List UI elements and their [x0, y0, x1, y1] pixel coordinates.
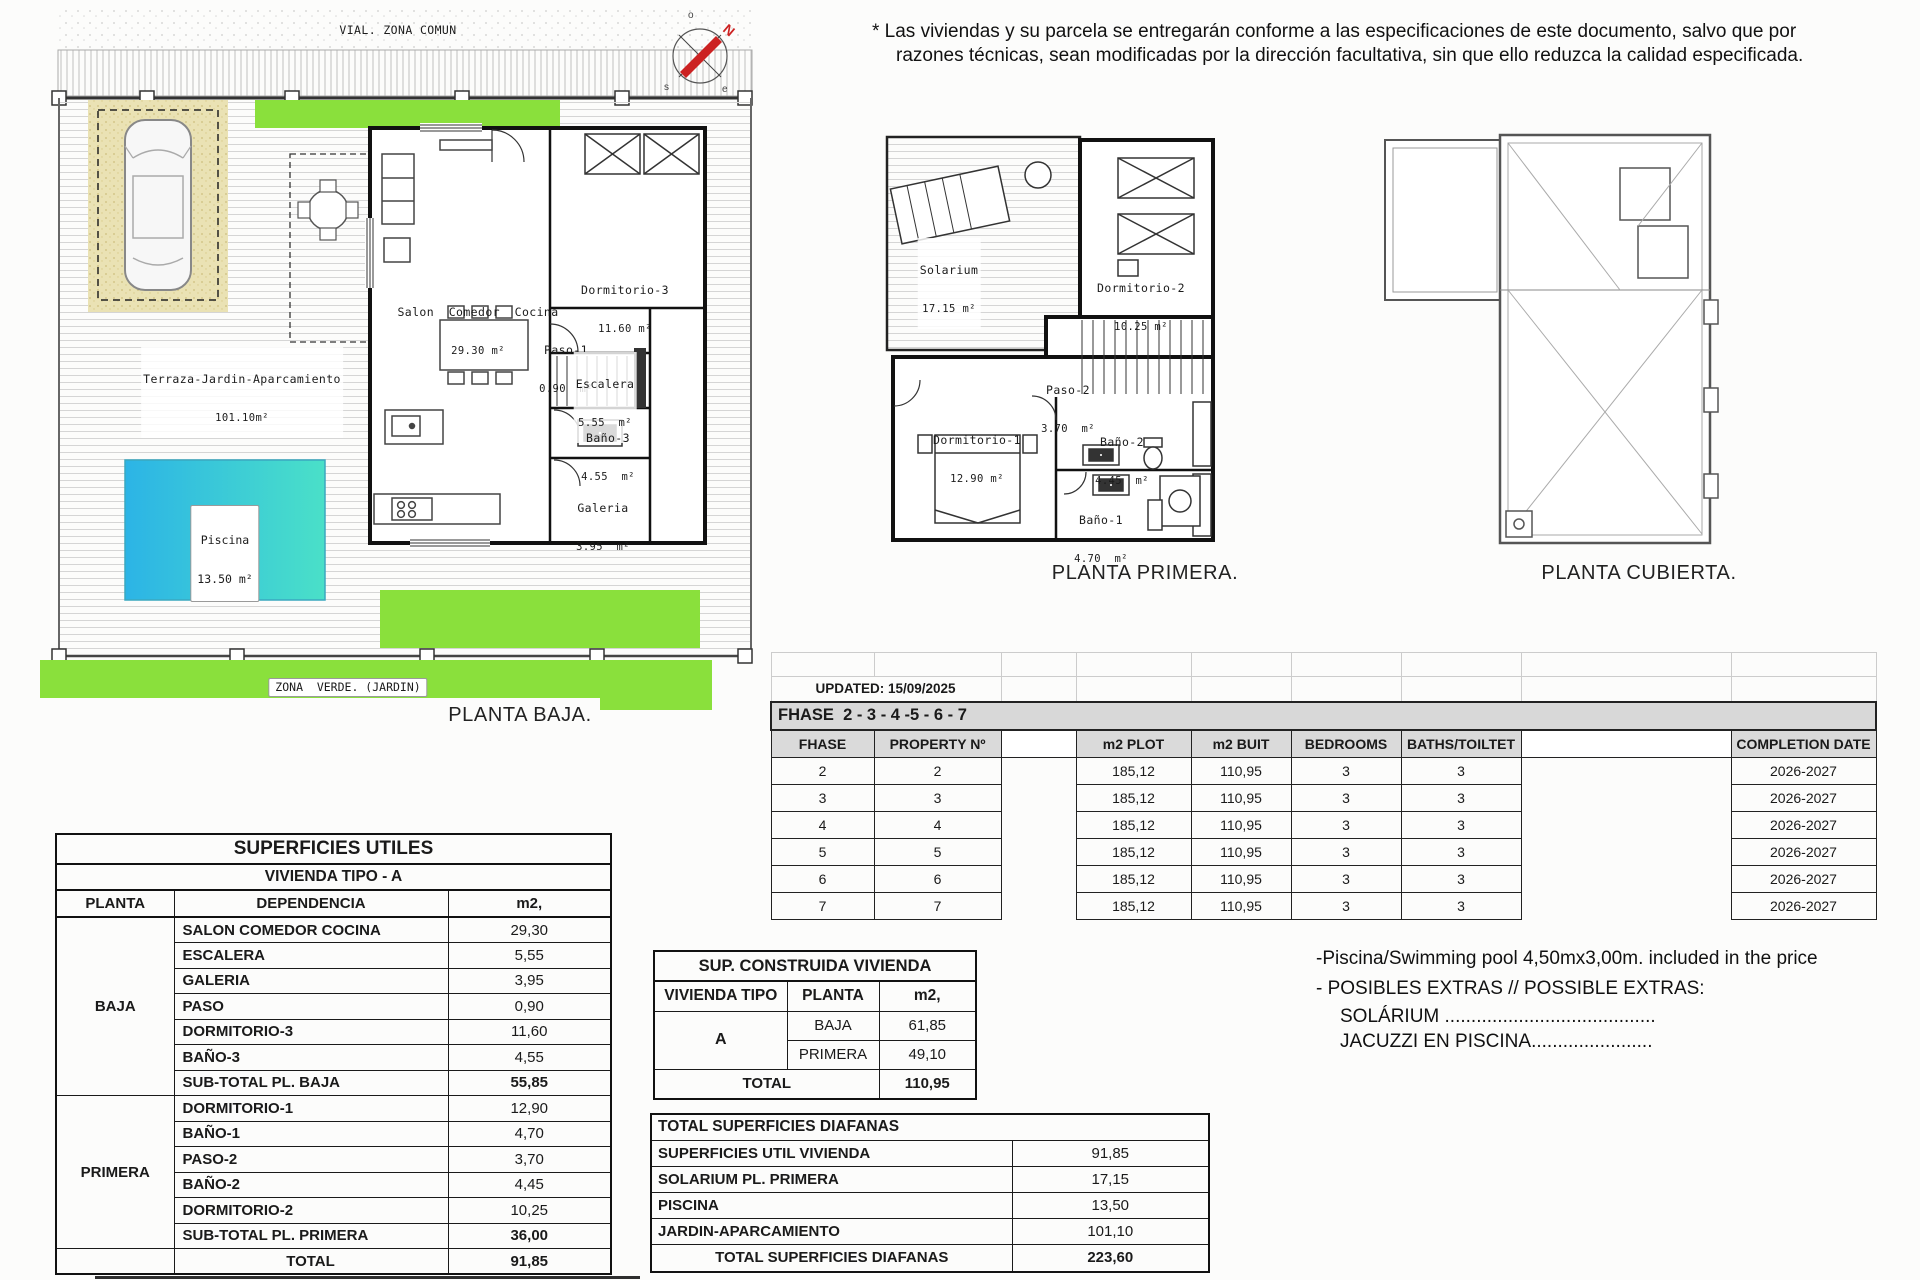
spacer-cell	[1521, 866, 1731, 893]
room-name: Galeria	[576, 502, 630, 515]
table-row: JARDIN-APARCAMIENTO 101,10	[651, 1218, 1209, 1244]
completion-cell: 2026-2027	[1731, 893, 1876, 920]
col-header-dependencia: DEPENDENCIA	[174, 890, 448, 917]
bedrooms-cell: 3	[1291, 866, 1401, 893]
room-name: Salon Comedor Cocina	[397, 306, 558, 319]
bedrooms-cell: 3	[1291, 893, 1401, 920]
fhase-cell: 5	[771, 839, 874, 866]
total-row: TOTAL 110,95	[654, 1069, 976, 1099]
dependencia-cell: BAÑO-3	[174, 1045, 448, 1071]
compass-o-label: o	[688, 10, 694, 21]
phase-row: 2 2 185,12 110,95 3 3 2026-2027	[771, 758, 1876, 785]
property-cell: 6	[874, 866, 1001, 893]
empty-cell	[1076, 677, 1191, 702]
room-name: Dormitorio-3	[581, 284, 669, 297]
phase-row: 3 3 185,12 110,95 3 3 2026-2027	[771, 785, 1876, 812]
total-row: TOTAL 91,85	[56, 1249, 611, 1275]
spacer-cell	[1001, 866, 1076, 893]
floorplan-spec-sheet: { "disclaimer": { "line1": "* Las vivien…	[0, 0, 1920, 1280]
room-area: 3.70 m²	[1041, 423, 1095, 436]
room-area: 17.15 m²	[920, 303, 979, 316]
built-cell: 110,95	[1191, 866, 1291, 893]
piscina-name: Piscina	[197, 534, 252, 547]
spacer-cell	[1521, 839, 1731, 866]
room-name: Dormitorio-1	[933, 434, 1021, 447]
updated-date: UPDATED: 15/09/2025	[771, 677, 1001, 702]
plan-cubierta	[1385, 135, 1718, 543]
col-header-completion: COMPLETION DATE	[1731, 730, 1876, 758]
col-header-planta: PLANTA	[56, 890, 174, 917]
m2-cell: 29,30	[448, 917, 611, 943]
room-name: Dormitorio-2	[1097, 282, 1185, 295]
room-name: Paso-2	[1041, 384, 1095, 397]
property-cell: 7	[874, 893, 1001, 920]
table-title: SUP. CONSTRUIDA VIVIENDA	[654, 951, 976, 981]
dependencia-cell: SALON COMEDOR COCINA	[174, 917, 448, 943]
room-area: 4.45 m²	[1095, 475, 1149, 488]
table-row: A BAJA 61,85	[654, 1011, 976, 1040]
total-label: TOTAL	[174, 1249, 448, 1275]
planta-cell: PRIMERA	[787, 1040, 879, 1069]
room-label-galeria: Galeria 3.95 m²	[576, 476, 630, 567]
table-subtitle: VIVIENDA TIPO - A	[56, 864, 611, 890]
tipo-cell: A	[654, 1011, 787, 1069]
empty-cell	[1521, 677, 1731, 702]
property-cell: 3	[874, 785, 1001, 812]
property-cell: 5	[874, 839, 1001, 866]
spacer-cell	[1001, 730, 1076, 758]
built-cell: 110,95	[1191, 812, 1291, 839]
plot-cell: 185,12	[1076, 866, 1191, 893]
completion-cell: 2026-2027	[1731, 812, 1876, 839]
phase-row: 4 4 185,12 110,95 3 3 2026-2027	[771, 812, 1876, 839]
m2-cell: 49,10	[879, 1040, 976, 1069]
room-name: Solarium	[920, 264, 979, 277]
terraza-label: Terraza-Jardin-Aparcamiento 101.10m²	[141, 347, 343, 438]
completion-cell: 2026-2027	[1731, 839, 1876, 866]
table-row: PISCINA 13,50	[651, 1192, 1209, 1218]
col-header-planta: PLANTA	[787, 981, 879, 1011]
fhase-cell: 7	[771, 893, 874, 920]
extra-solarium: SOLÁRIUM ...............................…	[1316, 1006, 1856, 1028]
col-header-m2: m2,	[879, 981, 976, 1011]
col-header-built: m2 BUIT	[1191, 730, 1291, 758]
m2-cell: 4,70	[448, 1121, 611, 1147]
room-name: Baño-2	[1095, 436, 1149, 449]
sup-construida-table: SUP. CONSTRUIDA VIVIENDA VIVIENDA TIPO P…	[653, 950, 977, 1100]
planta-cell: BAJA	[787, 1011, 879, 1040]
table-row: BAJA SALON COMEDOR COCINA 29,30	[56, 917, 611, 943]
phase-band: FHASE 2 - 3 - 4 -5 - 6 - 7	[771, 702, 1876, 730]
empty-cell	[1001, 653, 1076, 677]
table-title: SUPERFICIES UTILES	[56, 834, 611, 864]
diafanas-label: PISCINA	[651, 1192, 1012, 1218]
diafanas-label: SUPERFICIES UTIL VIVIENDA	[651, 1140, 1012, 1166]
room-label-dormitorio1: Dormitorio-1 12.90 m²	[933, 408, 1021, 499]
col-header-plot: m2 PLOT	[1076, 730, 1191, 758]
terraza-name: Terraza-Jardin-Aparcamiento	[143, 373, 341, 386]
parking-area	[88, 100, 228, 312]
empty-cell	[1731, 677, 1876, 702]
phase-row: 5 5 185,12 110,95 3 3 2026-2027	[771, 839, 1876, 866]
room-label-dormitorio3: Dormitorio-3 11.60 m²	[581, 258, 669, 349]
table-title: TOTAL SUPERFICIES DIAFANAS	[651, 1114, 1209, 1140]
piscina-area: 13.50 m²	[197, 573, 252, 586]
m2-cell: 10,25	[448, 1198, 611, 1224]
total-value: 223,60	[1012, 1244, 1209, 1272]
notes-block: -Piscina/Swimming pool 4,50mx3,00m. incl…	[1316, 948, 1856, 1056]
built-cell: 110,95	[1191, 893, 1291, 920]
table-row: PRIMERA DORMITORIO-1 12,90	[56, 1096, 611, 1122]
fhase-cell: 4	[771, 812, 874, 839]
empty-cell	[1291, 653, 1401, 677]
plot-cell: 185,12	[1076, 839, 1191, 866]
bedrooms-cell: 3	[1291, 758, 1401, 785]
total-label: TOTAL SUPERFICIES DIAFANAS	[651, 1244, 1012, 1272]
room-name: Baño-1	[1074, 514, 1128, 527]
col-header-bedrooms: BEDROOMS	[1291, 730, 1401, 758]
empty-cell	[1191, 677, 1291, 702]
m2-cell: 4,55	[448, 1045, 611, 1071]
extras-title: - POSIBLES EXTRAS // POSSIBLE EXTRAS:	[1316, 978, 1856, 1000]
built-cell: 110,95	[1191, 758, 1291, 785]
col-header-m2: m2,	[448, 890, 611, 917]
m2-cell: 5,55	[448, 943, 611, 969]
phase-table: UPDATED: 15/09/2025 FHASE 2 - 3 - 4 -5 -…	[770, 652, 1877, 920]
diafanas-value: 17,15	[1012, 1166, 1209, 1192]
compass-s-label: s	[664, 82, 669, 93]
m2-cell: 4,45	[448, 1172, 611, 1198]
col-header-vivienda-tipo: VIVIENDA TIPO	[654, 981, 787, 1011]
built-cell: 110,95	[1191, 839, 1291, 866]
dependencia-cell: BAÑO-2	[174, 1172, 448, 1198]
m2-cell: 11,60	[448, 1019, 611, 1045]
extra-jacuzzi: JACUZZI EN PISCINA......................…	[1316, 1031, 1856, 1053]
dependencia-cell: ESCALERA	[174, 943, 448, 969]
baths-cell: 3	[1401, 812, 1521, 839]
spacer-cell	[1001, 758, 1076, 785]
phase-row: 6 6 185,12 110,95 3 3 2026-2027	[771, 866, 1876, 893]
spacer-cell	[1001, 893, 1076, 920]
disclaimer-line2: razones técnicas, sean modificadas por l…	[872, 44, 1832, 68]
dependencia-cell: DORMITORIO-2	[174, 1198, 448, 1224]
spacer-cell	[1001, 839, 1076, 866]
spacer-cell	[1521, 758, 1731, 785]
room-label-solarium: Solarium 17.15 m²	[918, 238, 981, 329]
dependencia-cell: PASO	[174, 994, 448, 1020]
green-bottom-right	[380, 590, 700, 648]
spacer-cell	[1521, 812, 1731, 839]
superficies-utiles-table: SUPERFICIES UTILES VIVIENDA TIPO - A PLA…	[55, 833, 612, 1275]
diafanas-table: TOTAL SUPERFICIES DIAFANAS SUPERFICIES U…	[650, 1113, 1210, 1273]
room-area: 11.60 m²	[581, 323, 669, 336]
subtotal-label: SUB-TOTAL PL. BAJA	[174, 1070, 448, 1096]
diafanas-value: 13,50	[1012, 1192, 1209, 1218]
spacer-cell	[1001, 785, 1076, 812]
dependencia-cell: DORMITORIO-3	[174, 1019, 448, 1045]
planta-primera-cell: PRIMERA	[56, 1096, 174, 1249]
built-cell: 110,95	[1191, 785, 1291, 812]
fhase-cell: 3	[771, 785, 874, 812]
room-label-paso2: Paso-2 3.70 m²	[1041, 358, 1095, 449]
m2-cell: 3,95	[448, 968, 611, 994]
spacer-cell	[1521, 730, 1731, 758]
completion-cell: 2026-2027	[1731, 758, 1876, 785]
plot-cell: 185,12	[1076, 812, 1191, 839]
dependencia-cell: PASO-2	[174, 1147, 448, 1173]
diafanas-value: 91,85	[1012, 1140, 1209, 1166]
col-header-fhase: FHASE	[771, 730, 874, 758]
spacer-cell	[1521, 785, 1731, 812]
m2-cell: 0,90	[448, 994, 611, 1020]
diafanas-label: SOLARIUM PL. PRIMERA	[651, 1166, 1012, 1192]
total-label: TOTAL	[654, 1069, 879, 1099]
completion-cell: 2026-2027	[1731, 866, 1876, 893]
scan-edge-line	[95, 1276, 640, 1279]
room-label-dormitorio2: Dormitorio-2 10.25 m²	[1097, 256, 1185, 347]
m2-cell: 12,90	[448, 1096, 611, 1122]
empty-cell	[1076, 653, 1191, 677]
planta-primera-title: PLANTA PRIMERA.	[1052, 562, 1238, 585]
empty-cell	[1001, 677, 1076, 702]
terraza-area: 101.10m²	[143, 412, 341, 425]
spacer-cell	[1001, 812, 1076, 839]
col-header-property: PROPERTY Nº	[874, 730, 1001, 758]
baths-cell: 3	[1401, 839, 1521, 866]
planta-baja-cell: BAJA	[56, 917, 174, 1096]
total-row: TOTAL SUPERFICIES DIAFANAS 223,60	[651, 1244, 1209, 1272]
room-area: 10.25 m²	[1097, 321, 1185, 334]
room-area: 29.30 m²	[397, 345, 558, 358]
table-row: SOLARIUM PL. PRIMERA 17,15	[651, 1166, 1209, 1192]
empty-cell	[1521, 653, 1731, 677]
empty-cell	[771, 653, 874, 677]
diafanas-label: JARDIN-APARCAMIENTO	[651, 1218, 1012, 1244]
bedrooms-cell: 3	[1291, 785, 1401, 812]
room-name: Baño-3	[581, 432, 635, 445]
empty-cell	[1401, 653, 1521, 677]
total-value: 110,95	[879, 1069, 976, 1099]
room-label-salon: Salon Comedor Cocina 29.30 m²	[397, 280, 558, 371]
phase-row: 7 7 185,12 110,95 3 3 2026-2027	[771, 893, 1876, 920]
piscina-label: Piscina 13.50 m²	[190, 505, 259, 602]
total-value: 91,85	[448, 1249, 611, 1275]
subtotal-label: SUB-TOTAL PL. PRIMERA	[174, 1223, 448, 1249]
green-strip-top	[255, 100, 560, 128]
dependencia-cell: DORMITORIO-1	[174, 1096, 448, 1122]
baths-cell: 3	[1401, 785, 1521, 812]
baths-cell: 3	[1401, 758, 1521, 785]
plot-cell: 185,12	[1076, 785, 1191, 812]
baths-cell: 3	[1401, 866, 1521, 893]
fhase-cell: 6	[771, 866, 874, 893]
room-area: 12.90 m²	[933, 473, 1021, 486]
planta-baja-title: PLANTA BAJA.	[448, 704, 592, 727]
empty-cell	[1731, 653, 1876, 677]
m2-cell: 3,70	[448, 1147, 611, 1173]
room-name: Escalera	[576, 378, 635, 391]
property-cell: 2	[874, 758, 1001, 785]
m2-cell: 61,85	[879, 1011, 976, 1040]
compass-e-label: e	[722, 84, 728, 95]
empty-cell	[56, 1249, 174, 1275]
diafanas-value: 101,10	[1012, 1218, 1209, 1244]
subtotal-value: 55,85	[448, 1070, 611, 1096]
empty-cell	[874, 653, 1001, 677]
zona-verde-label: ZONA VERDE. (JARDIN)	[268, 678, 427, 697]
empty-cell	[1191, 653, 1291, 677]
empty-cell	[1291, 677, 1401, 702]
col-header-baths: BATHS/TOILTET	[1401, 730, 1521, 758]
property-cell: 4	[874, 812, 1001, 839]
car-icon	[125, 120, 191, 290]
vial-zona-comun-label: VIAL. ZONA COMUN	[339, 24, 456, 37]
spacer-cell	[1521, 893, 1731, 920]
planta-cubierta-title: PLANTA CUBIERTA.	[1541, 562, 1736, 585]
subtotal-value: 36,00	[448, 1223, 611, 1249]
plot-cell: 185,12	[1076, 893, 1191, 920]
bedrooms-cell: 3	[1291, 839, 1401, 866]
table-row: SUPERFICIES UTIL VIVIENDA 91,85	[651, 1140, 1209, 1166]
baths-cell: 3	[1401, 893, 1521, 920]
dependencia-cell: BAÑO-1	[174, 1121, 448, 1147]
bedrooms-cell: 3	[1291, 812, 1401, 839]
pool-note: -Piscina/Swimming pool 4,50mx3,00m. incl…	[1316, 948, 1856, 970]
dependencia-cell: GALERIA	[174, 968, 448, 994]
fhase-cell: 2	[771, 758, 874, 785]
empty-cell	[1401, 677, 1521, 702]
completion-cell: 2026-2027	[1731, 785, 1876, 812]
room-area: 3.95 m²	[576, 541, 630, 554]
plot-cell: 185,12	[1076, 758, 1191, 785]
disclaimer: * Las viviendas y su parcela se entregar…	[872, 20, 1832, 68]
disclaimer-line1: * Las viviendas y su parcela se entregar…	[872, 20, 1832, 44]
